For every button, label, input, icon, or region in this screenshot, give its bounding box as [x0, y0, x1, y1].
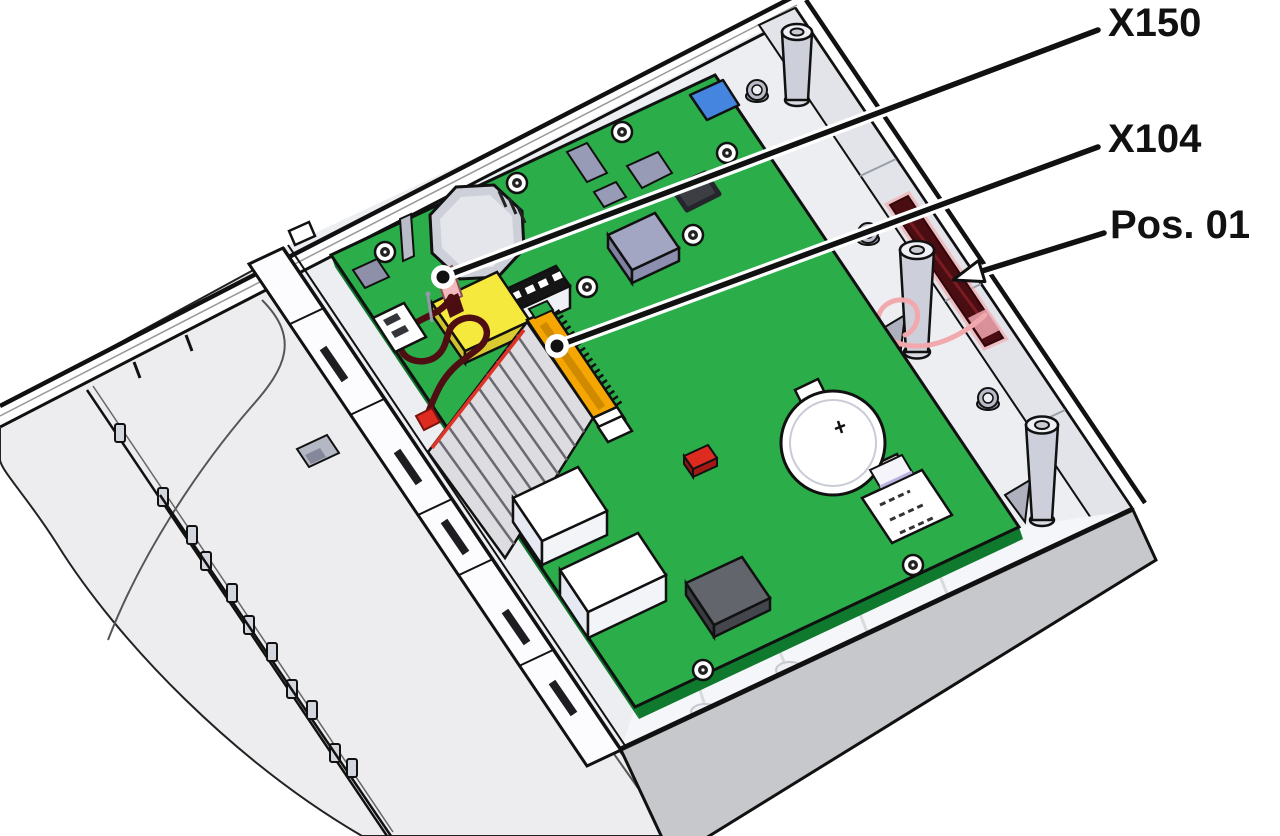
- callout-label-x104: X104: [1108, 117, 1202, 161]
- leader-dot-x150: [437, 271, 450, 284]
- device-illustration: X150 X104 Pos. 01: [0, 0, 1280, 836]
- callout-label-pos01: Pos. 01: [1110, 203, 1250, 247]
- metal-tab: [400, 214, 414, 261]
- leader-line-pos01: [982, 233, 1104, 271]
- illustration-stage: X150 X104 Pos. 01: [0, 0, 1280, 836]
- standoff-post: [782, 24, 812, 106]
- leader-dot-x104: [551, 340, 564, 353]
- callout-label-x150: X150: [1108, 1, 1201, 45]
